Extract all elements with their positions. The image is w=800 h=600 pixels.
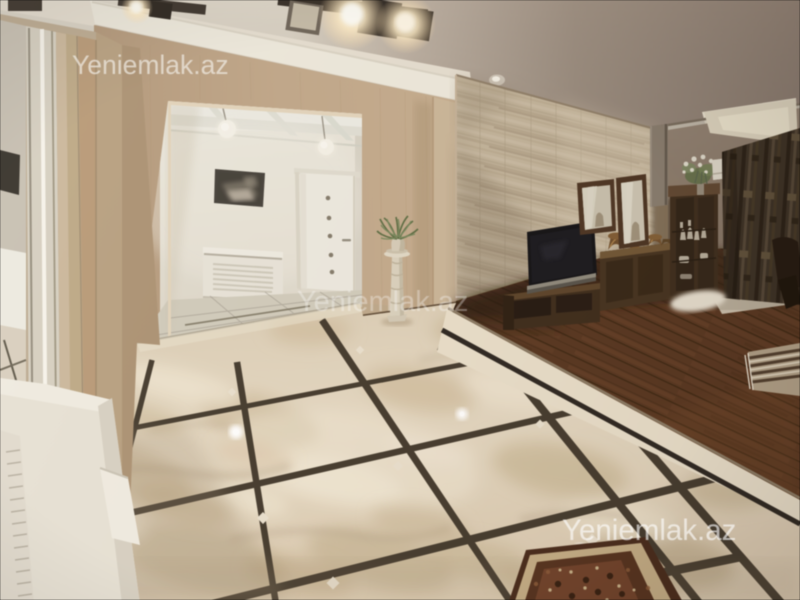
svg-text:Yeniemlak.az: Yeniemlak.az (562, 514, 736, 547)
svg-text:Yeniemlak.az: Yeniemlak.az (297, 286, 468, 318)
svg-text:Yeniemlak.az: Yeniemlak.az (72, 50, 229, 80)
